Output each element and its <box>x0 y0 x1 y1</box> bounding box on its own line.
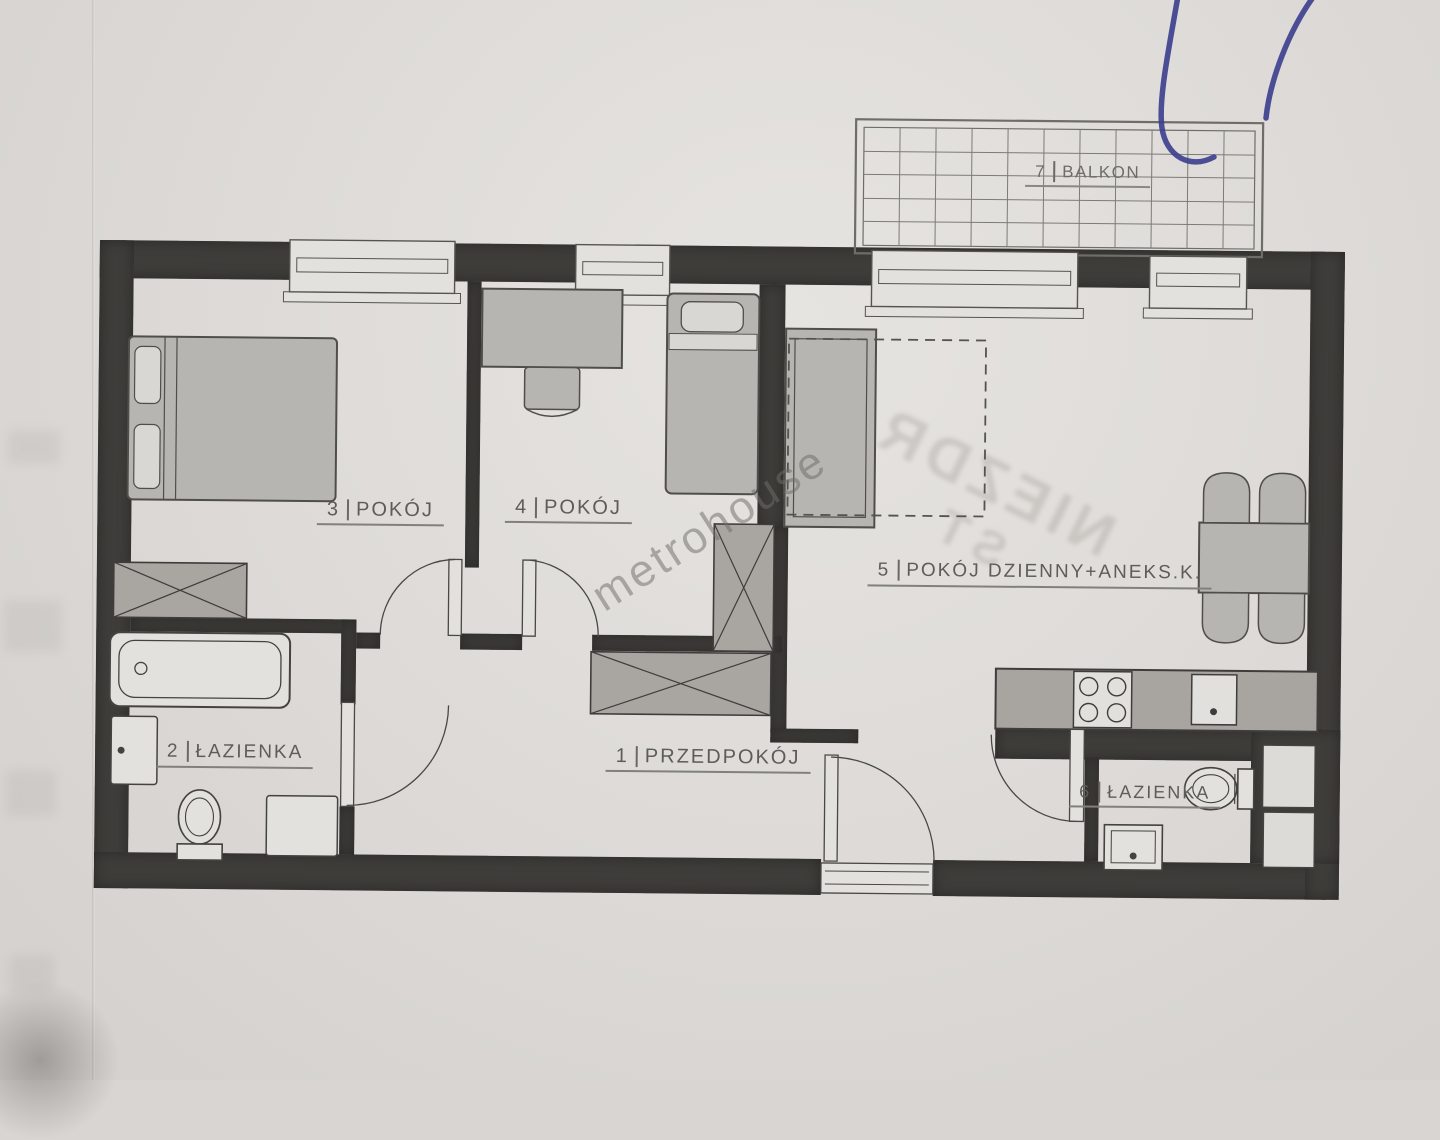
photographed-paper: NIEZDR ST <box>0 0 1440 1080</box>
pen-scribble <box>0 0 1440 1080</box>
